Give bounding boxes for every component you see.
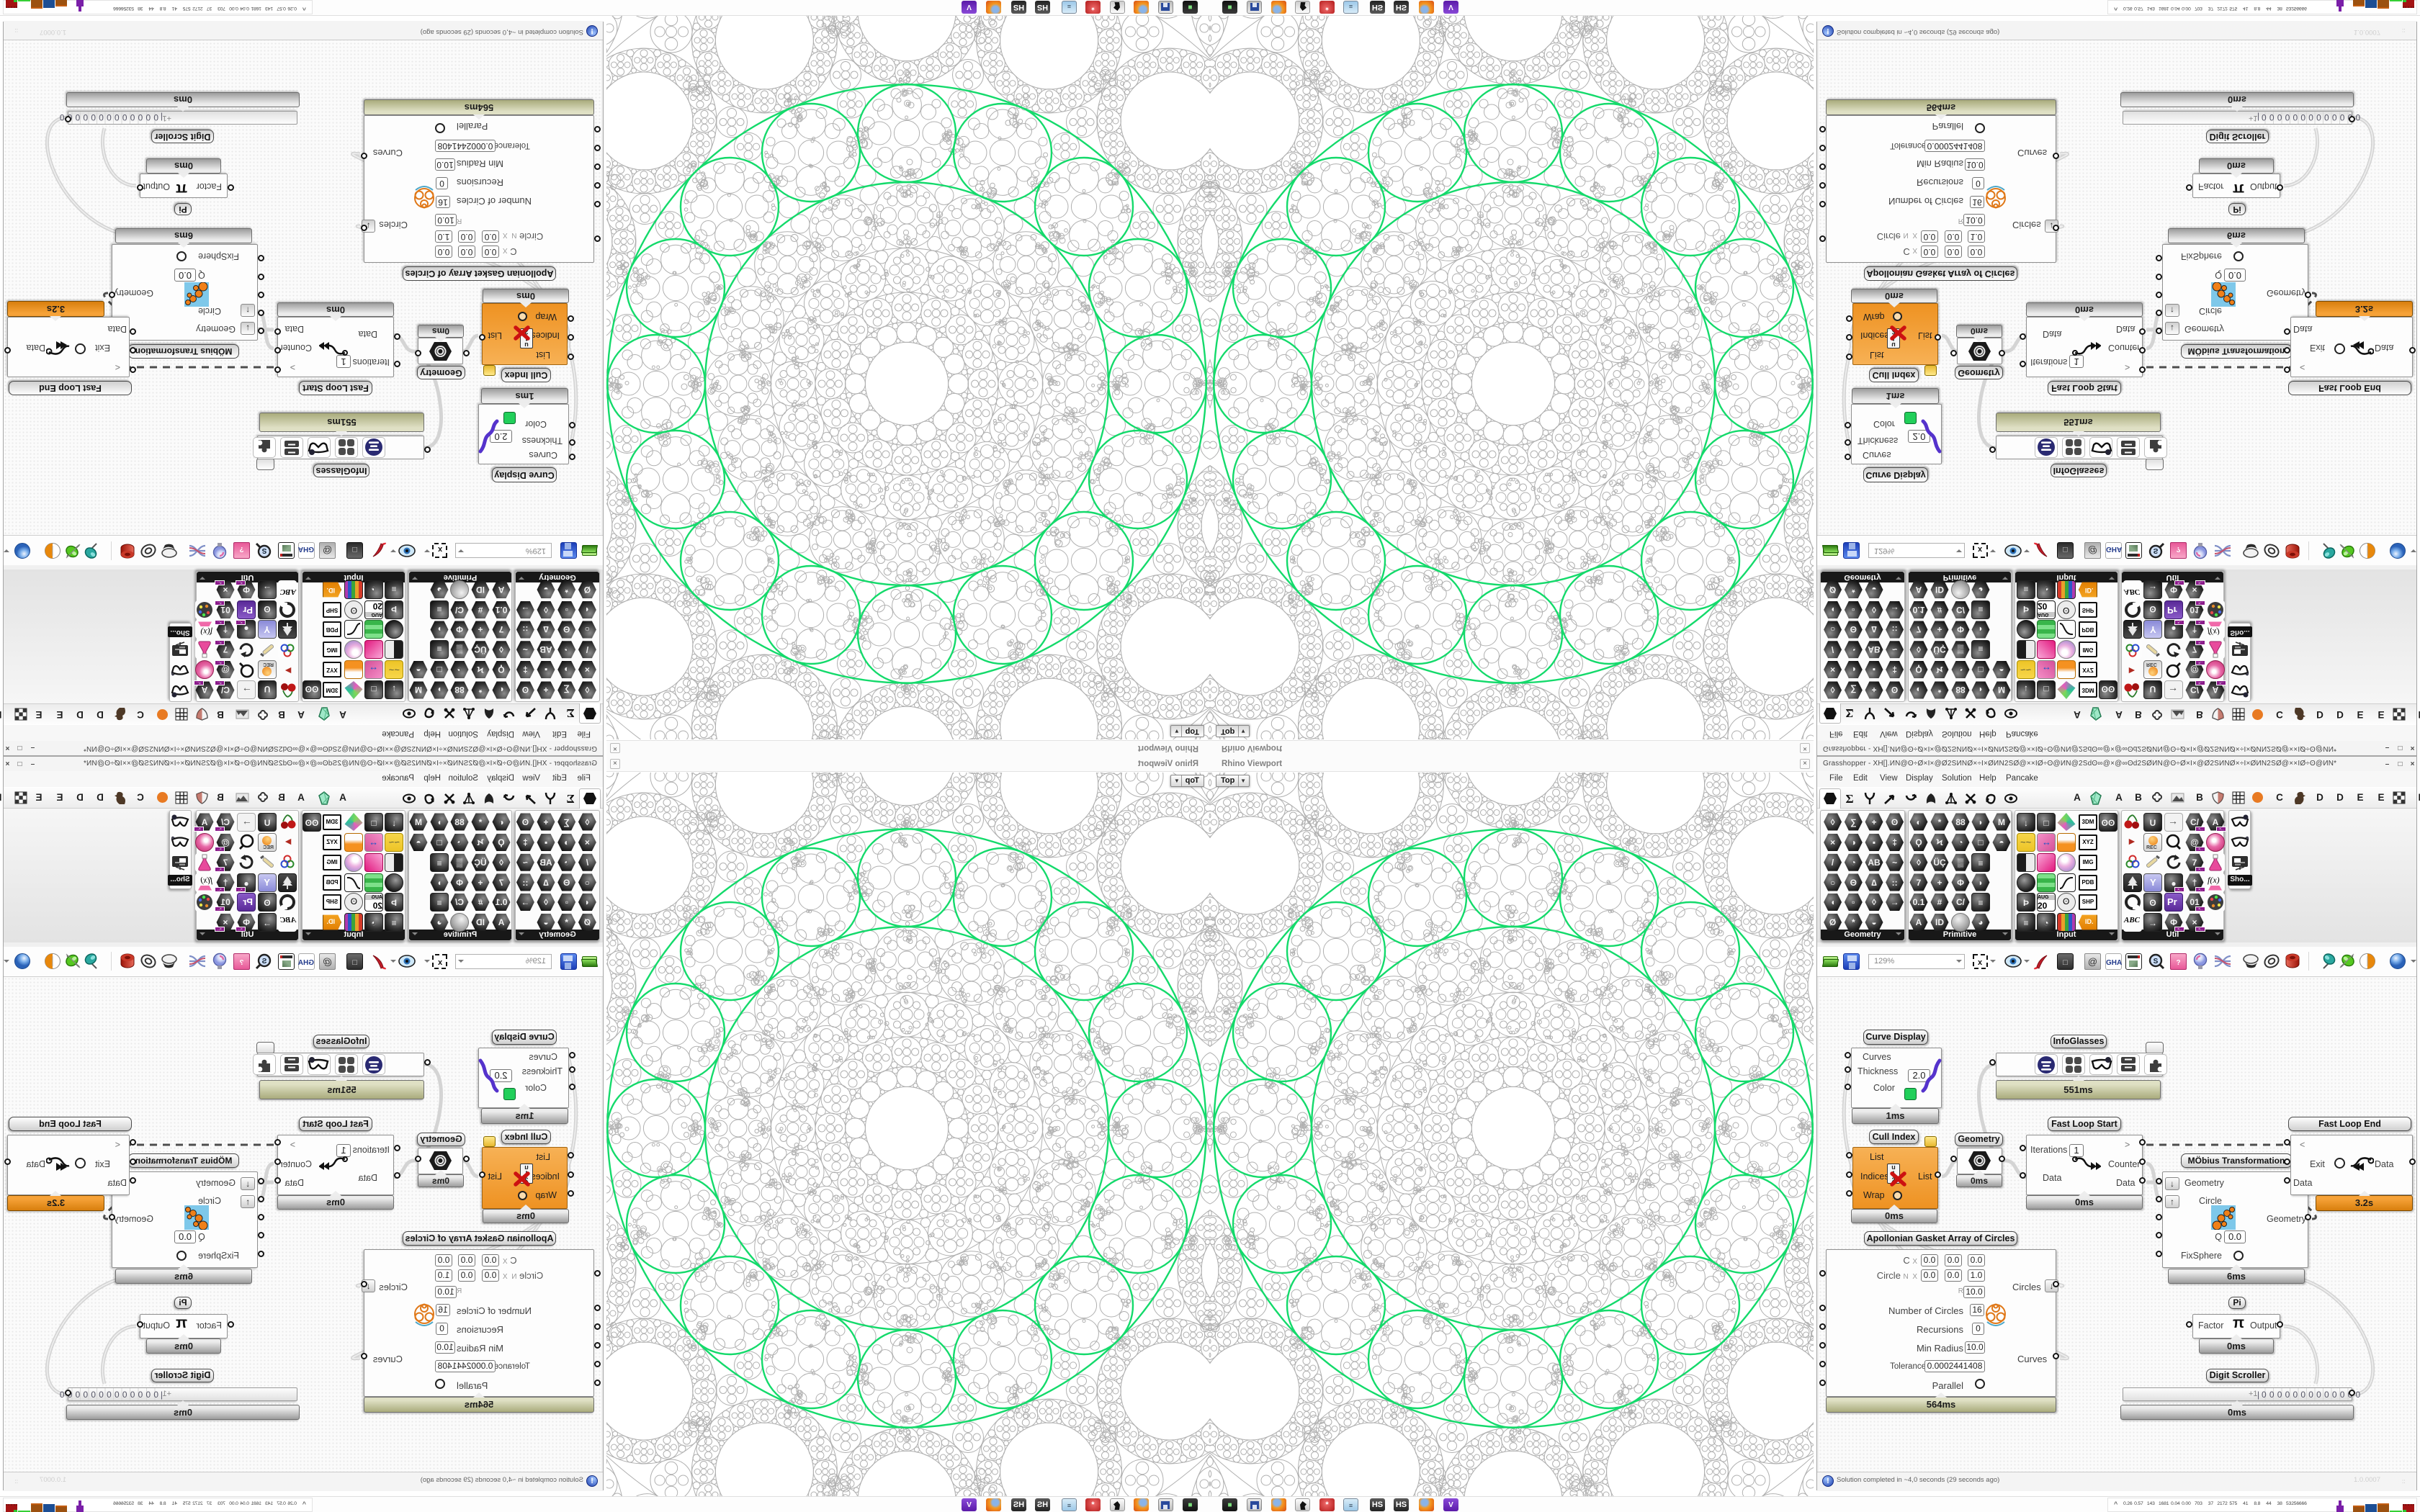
svg-text:x: x bbox=[1978, 958, 1983, 967]
svg-text:S: S bbox=[2154, 958, 2159, 966]
svg-text:Σ: Σ bbox=[1845, 792, 1853, 805]
